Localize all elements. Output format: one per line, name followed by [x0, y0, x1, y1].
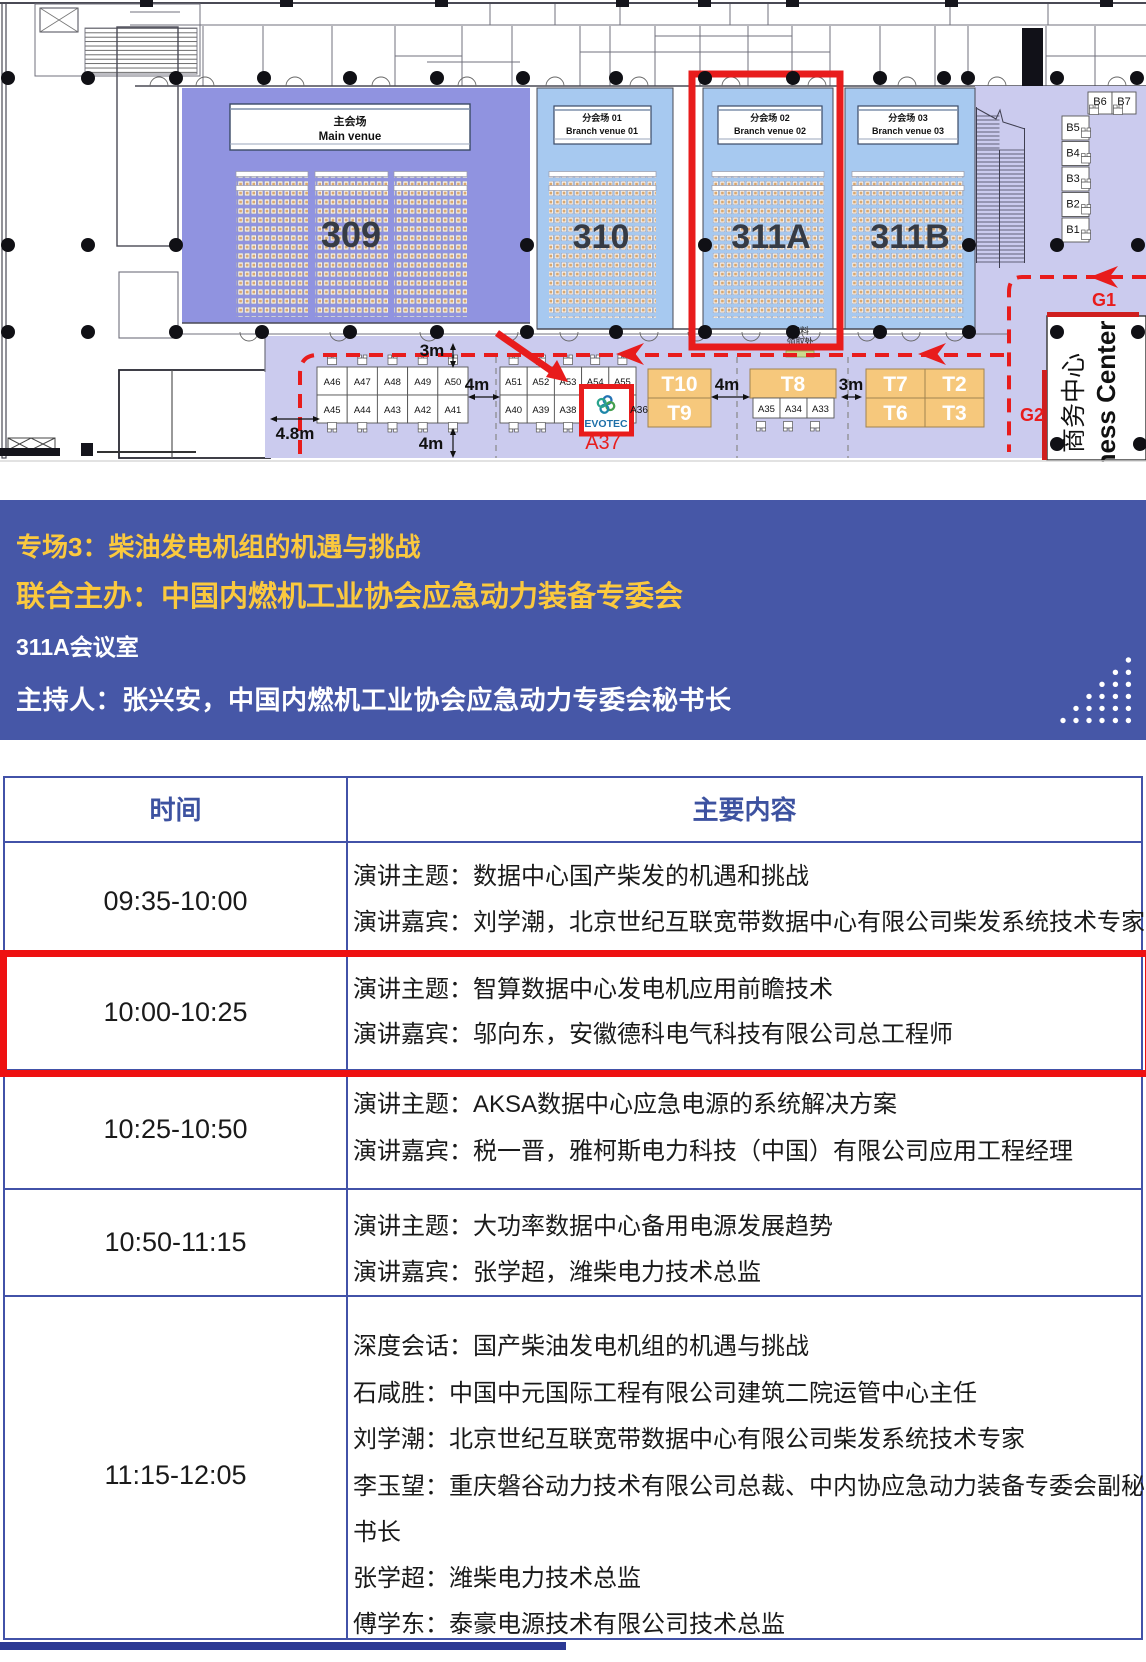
svg-text:A43: A43: [384, 405, 401, 416]
svg-text:A42: A42: [414, 405, 431, 416]
svg-text:A44: A44: [354, 405, 371, 416]
svg-text:311B: 311B: [870, 218, 949, 256]
svg-text:ness Center: ness Center: [1091, 321, 1121, 462]
svg-text:310: 310: [573, 218, 630, 256]
svg-text:A39: A39: [532, 405, 549, 416]
svg-text:G2: G2: [1020, 405, 1044, 425]
svg-text:T10: T10: [661, 373, 697, 396]
svg-text:Main venue: Main venue: [319, 131, 382, 143]
svg-text:分会场 03: 分会场 03: [888, 112, 928, 123]
svg-text:T7: T7: [883, 373, 908, 396]
svg-text:A51: A51: [505, 377, 522, 388]
svg-text:B5: B5: [1066, 122, 1079, 134]
svg-text:T2: T2: [942, 373, 967, 396]
svg-text:B1: B1: [1066, 224, 1079, 236]
svg-text:A49: A49: [414, 377, 431, 388]
svg-text:主会场: 主会场: [334, 114, 367, 128]
svg-text:B3: B3: [1066, 173, 1079, 185]
svg-text:309: 309: [321, 214, 381, 255]
svg-text:A48: A48: [384, 377, 401, 388]
svg-text:A41: A41: [444, 405, 461, 416]
svg-text:B4: B4: [1066, 148, 1079, 160]
svg-text:3m: 3m: [420, 341, 445, 360]
svg-text:A40: A40: [505, 405, 522, 416]
svg-text:A52: A52: [532, 377, 549, 388]
svg-text:A38: A38: [560, 405, 577, 416]
svg-text:4.8m: 4.8m: [276, 424, 315, 443]
svg-text:EVOTEC: EVOTEC: [584, 418, 628, 430]
svg-text:Branch venue 03: Branch venue 03: [872, 126, 944, 136]
svg-text:T6: T6: [883, 402, 908, 425]
svg-text:4m: 4m: [715, 375, 740, 394]
svg-text:分会场 02: 分会场 02: [750, 112, 790, 123]
svg-text:分会场 01: 分会场 01: [582, 112, 622, 123]
svg-text:Branch venue 01: Branch venue 01: [566, 126, 638, 136]
svg-text:T3: T3: [942, 402, 967, 425]
svg-text:G1: G1: [1092, 290, 1116, 310]
svg-text:A34: A34: [785, 404, 802, 415]
svg-text:A35: A35: [758, 404, 775, 415]
svg-text:T9: T9: [667, 402, 692, 425]
svg-text:A47: A47: [354, 377, 371, 388]
svg-text:A33: A33: [812, 404, 829, 415]
svg-text:商务中心: 商务中心: [1060, 353, 1088, 453]
svg-text:T8: T8: [781, 373, 806, 396]
svg-text:A37: A37: [585, 432, 621, 454]
svg-text:A45: A45: [324, 405, 341, 416]
svg-text:A36: A36: [630, 405, 648, 416]
svg-text:4m: 4m: [465, 375, 490, 394]
svg-text:A50: A50: [444, 377, 461, 388]
svg-text:3m: 3m: [839, 375, 864, 394]
svg-text:Branch venue 02: Branch venue 02: [734, 126, 806, 136]
svg-text:B2: B2: [1066, 199, 1079, 211]
svg-text:A46: A46: [324, 377, 341, 388]
svg-text:311A: 311A: [731, 218, 810, 256]
svg-text:4m: 4m: [419, 434, 444, 453]
